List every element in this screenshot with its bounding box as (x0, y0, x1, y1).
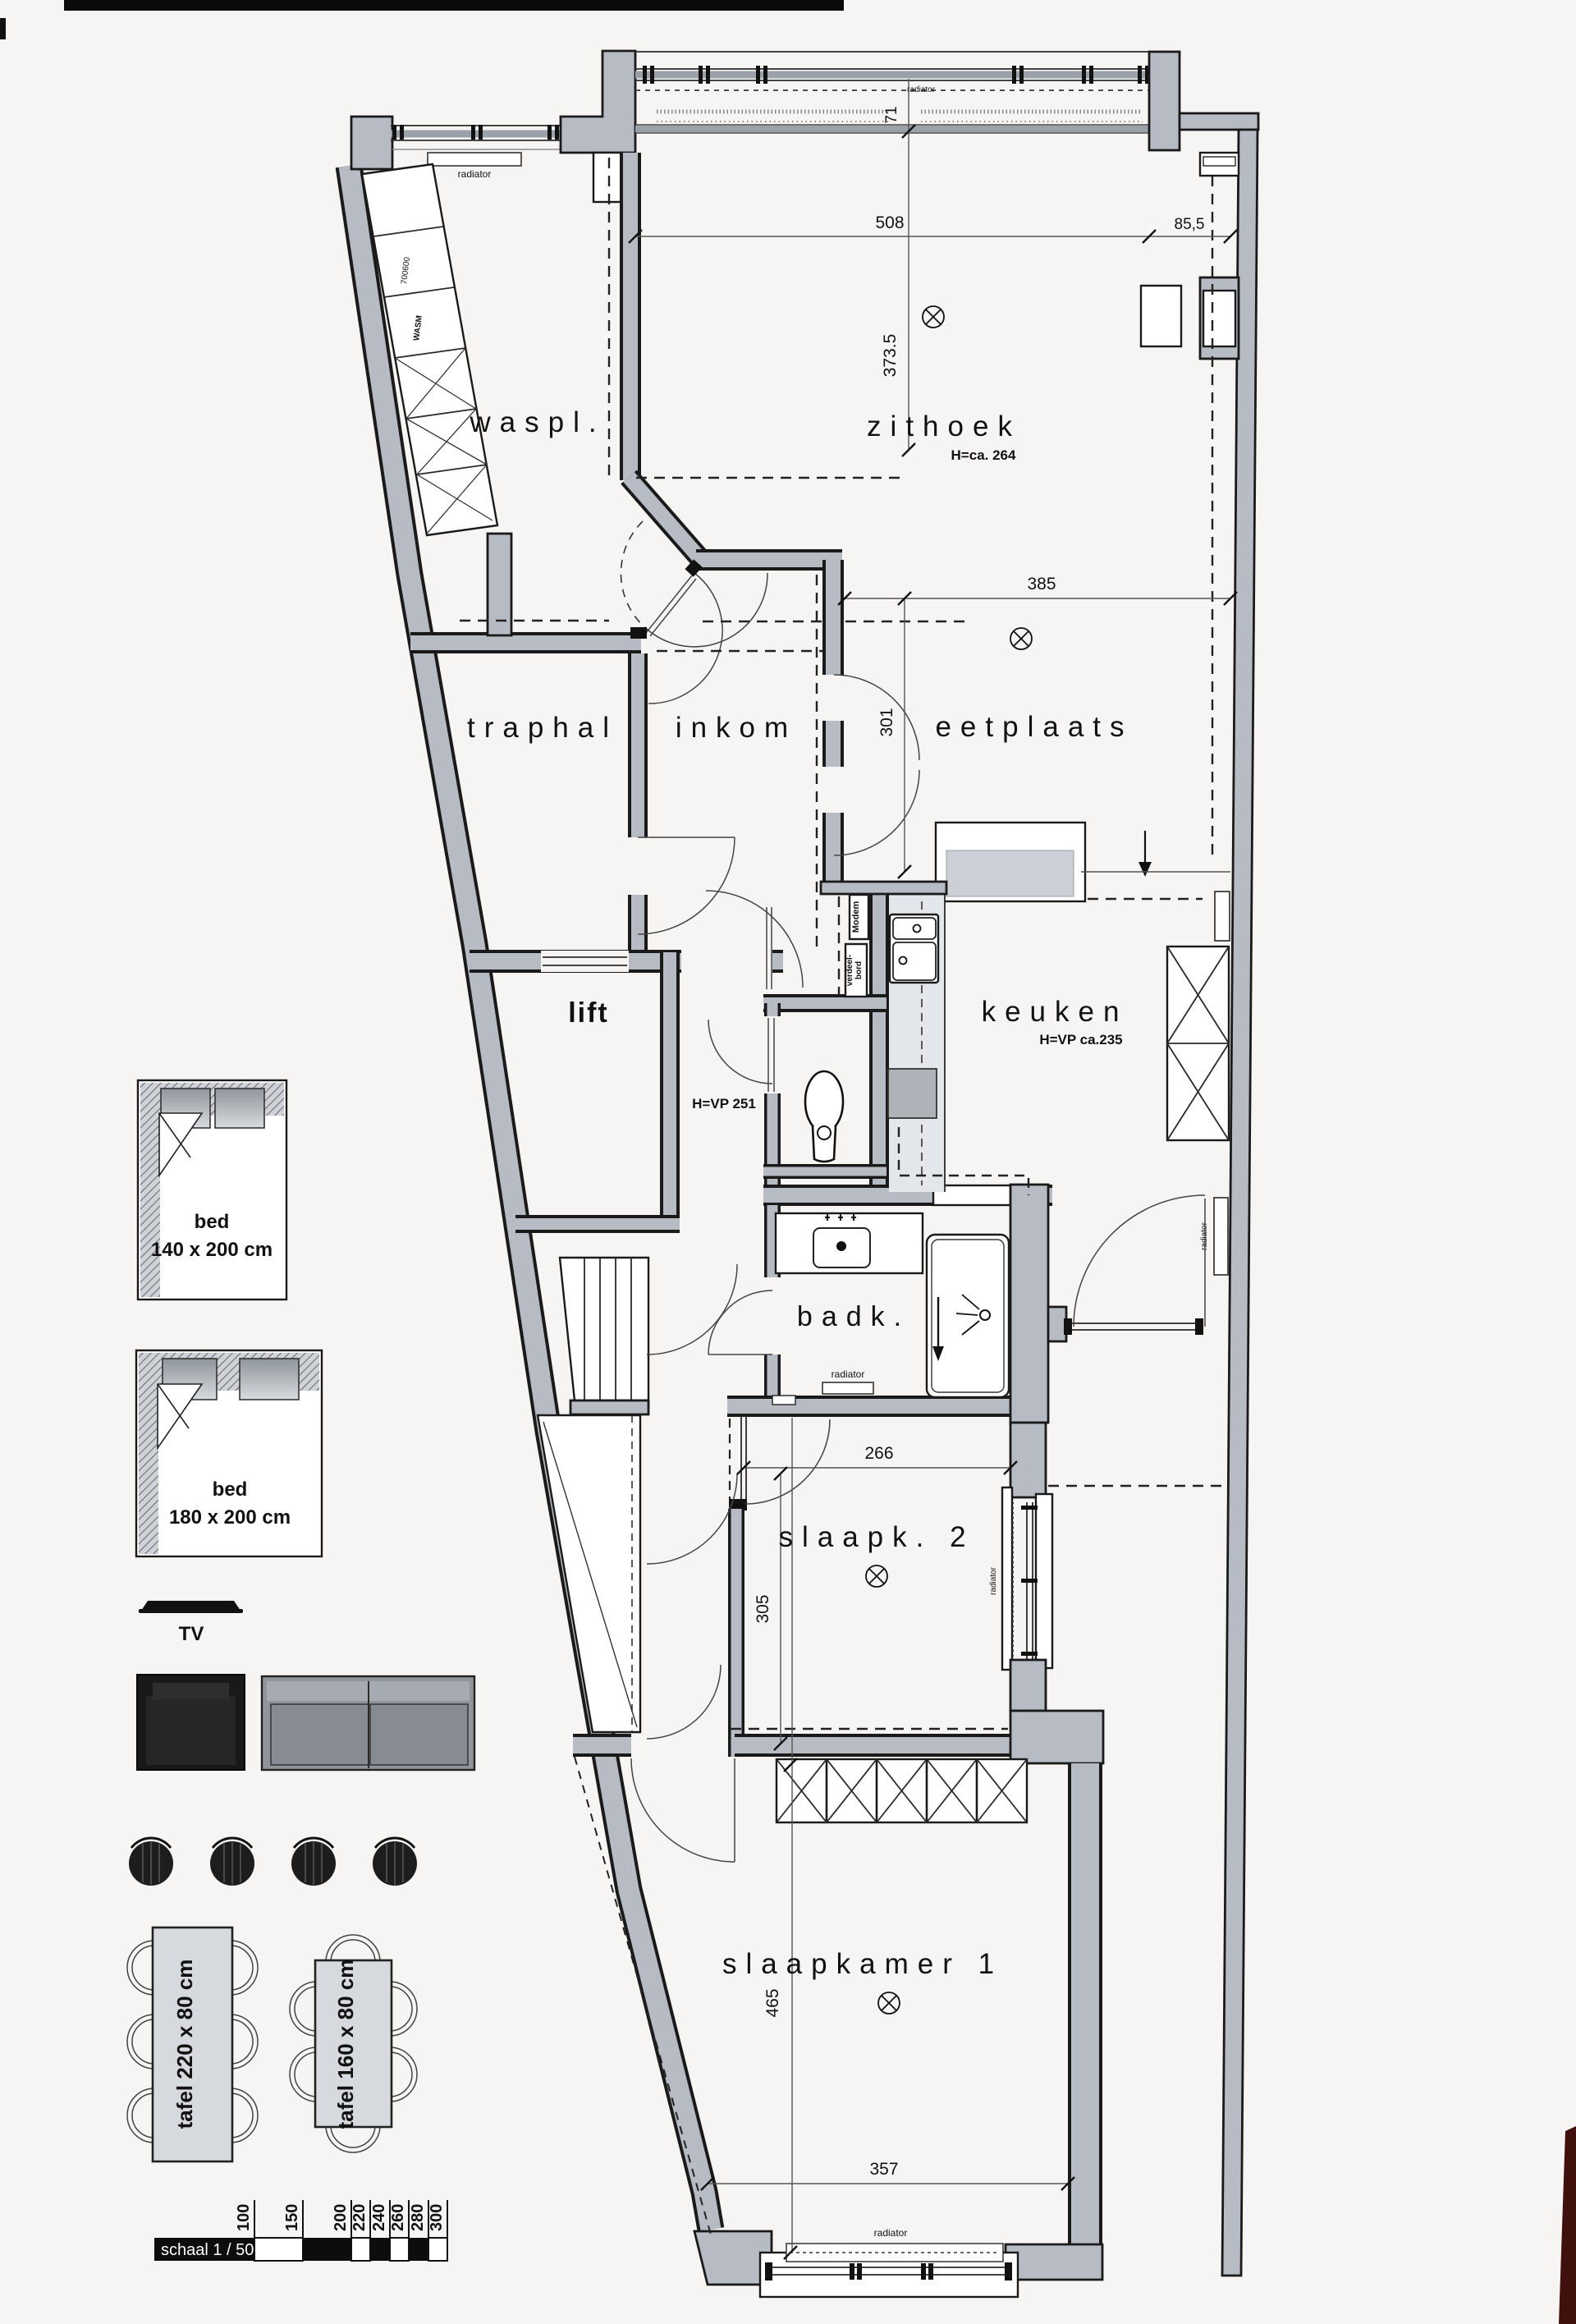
svg-text:waspl.: waspl. (469, 406, 605, 438)
svg-text:bord: bord (854, 961, 864, 979)
svg-text:eetplaats: eetplaats (935, 711, 1133, 743)
svg-text:240: 240 (370, 2204, 388, 2231)
svg-text:508: 508 (875, 213, 904, 232)
svg-text:slaapkamer 1: slaapkamer 1 (722, 1948, 1003, 1980)
svg-text:TV: TV (179, 1623, 204, 1645)
svg-text:radiator: radiator (989, 1566, 998, 1595)
svg-text:lift: lift (568, 997, 609, 1029)
svg-text:200: 200 (332, 2204, 350, 2231)
svg-text:bed: bed (213, 1478, 248, 1501)
svg-text:radiator: radiator (874, 2227, 908, 2239)
svg-text:radiator: radiator (907, 85, 936, 94)
svg-text:inkom: inkom (676, 712, 797, 744)
svg-text:465: 465 (763, 1988, 782, 2017)
svg-text:H=ca. 264: H=ca. 264 (951, 447, 1016, 463)
svg-text:357: 357 (869, 2160, 898, 2179)
svg-text:85,5: 85,5 (1175, 216, 1205, 233)
svg-text:100: 100 (235, 2204, 253, 2231)
svg-text:zithoek: zithoek (867, 410, 1021, 442)
svg-text:bed: bed (195, 1211, 230, 1233)
svg-text:385: 385 (1027, 575, 1056, 594)
svg-text:71: 71 (883, 106, 900, 123)
svg-text:slaapk. 2: slaapk. 2 (778, 1521, 974, 1553)
svg-text:266: 266 (864, 1444, 893, 1463)
svg-text:300: 300 (428, 2204, 446, 2231)
svg-text:Modem: Modem (851, 901, 861, 933)
svg-text:140 x 200 cm: 140 x 200 cm (151, 1239, 273, 1261)
svg-text:180 x 200 cm: 180 x 200 cm (169, 1506, 291, 1529)
svg-text:260: 260 (389, 2204, 407, 2231)
svg-text:tafel 220 x 80 cm: tafel 220 x 80 cm (172, 1960, 197, 2129)
svg-text:305: 305 (754, 1594, 772, 1623)
svg-text:keuken: keuken (982, 996, 1129, 1028)
svg-text:150: 150 (283, 2204, 301, 2231)
svg-text:schaal 1 / 50: schaal 1 / 50 (161, 2241, 254, 2259)
svg-text:tafel 160 x 80 cm: tafel 160 x 80 cm (333, 1960, 358, 2129)
svg-text:traphal: traphal (467, 712, 618, 744)
svg-text:verdeel-: verdeel- (845, 955, 854, 986)
svg-text:220: 220 (350, 2204, 369, 2231)
svg-text:280: 280 (409, 2204, 427, 2231)
svg-text:373.5: 373.5 (881, 334, 900, 378)
svg-text:badk.: badk. (797, 1301, 910, 1332)
svg-text:radiator: radiator (458, 168, 492, 180)
svg-text:301: 301 (877, 708, 896, 736)
svg-text:radiator: radiator (832, 1368, 865, 1380)
svg-text:H=VP 251: H=VP 251 (692, 1096, 756, 1112)
svg-text:H=VP ca.235: H=VP ca.235 (1039, 1032, 1122, 1047)
